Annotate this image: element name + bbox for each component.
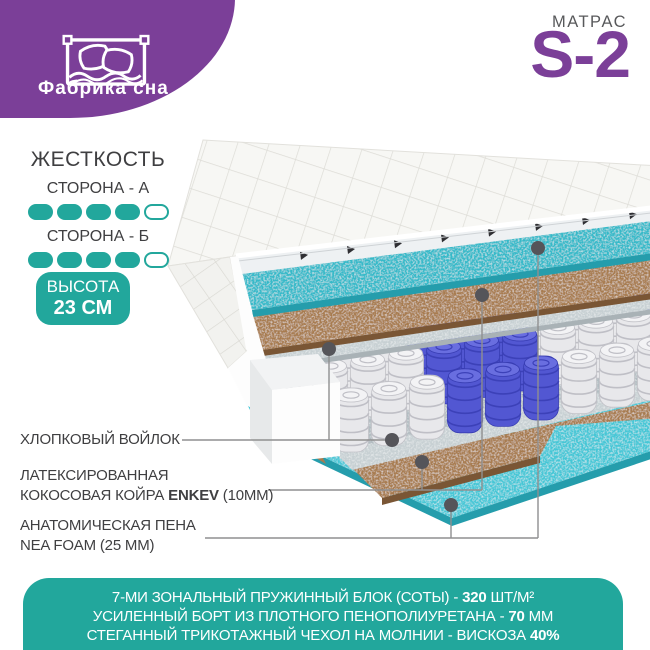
callout-dot-coir-top: [475, 288, 489, 302]
firmness-pill: [144, 252, 169, 268]
firmness-title: ЖЕСТКОСТЬ: [10, 148, 186, 172]
height-badge: ВЫСОТА 23 СМ: [36, 272, 130, 325]
callout-dot-felt-bottom: [385, 433, 399, 447]
firmness-pill: [86, 204, 111, 220]
layer-label-felt: ХЛОПКОВЫЙ ВОЙЛОК: [20, 430, 180, 450]
brand-name: Фабрика сна: [38, 78, 169, 100]
layer-label-coir: ЛАТЕКСИРОВАННАЯКОКОСОВАЯ КОЙРА ENKEV (10…: [20, 466, 273, 506]
firmness-panel: ЖЕСТКОСТЬ СТОРОНА - АСТОРОНА - Б: [10, 148, 186, 268]
pocket-spring-blue: [486, 362, 521, 426]
callout-dot-foam-top: [531, 241, 545, 255]
firmness-side-label: СТОРОНА - Б: [10, 228, 186, 246]
pocket-spring-white: [410, 375, 445, 439]
pocket-spring-blue: [524, 356, 559, 420]
pillow-icon: [78, 43, 134, 75]
callout-dot-coir-bottom: [415, 455, 429, 469]
specs-banner-line: УСИЛЕННЫЙ БОРТ ИЗ ПЛОТНОГО ПЕНОПОЛИУРЕТА…: [23, 607, 623, 626]
firmness-pill: [28, 252, 53, 268]
specs-banner: 7-МИ ЗОНАЛЬНЫЙ ПРУЖИННЫЙ БЛОК (СОТЫ) - 3…: [23, 578, 623, 650]
height-badge-value: 23 СМ: [54, 297, 113, 320]
pocket-spring-white: [638, 337, 650, 401]
firmness-pill: [115, 204, 140, 220]
pocket-spring-white: [562, 350, 597, 414]
pocket-spring-blue: [448, 369, 483, 433]
firmness-pill: [57, 204, 82, 220]
specs-banner-line: 7-МИ ЗОНАЛЬНЫЙ ПРУЖИННЫЙ БЛОК (СОТЫ) - 3…: [23, 588, 623, 607]
firmness-pill: [144, 204, 169, 220]
firmness-pill: [57, 252, 82, 268]
pocket-spring-white: [600, 343, 635, 407]
foam-border-block: [250, 354, 340, 464]
firmness-pill: [86, 252, 111, 268]
layer-label-foam: АНАТОМИЧЕСКАЯ ПЕНАNEA FOAM (25 ММ): [20, 516, 196, 556]
callout-dot-foam-bottom: [444, 498, 458, 512]
callout-dot-felt-top: [322, 342, 336, 356]
firmness-side-b: СТОРОНА - Б: [10, 228, 186, 268]
firmness-side-a: СТОРОНА - А: [10, 180, 186, 220]
product-infographic: Фабрика сна МАТРАС S-2 ЖЕСТКОСТЬ СТОРОНА…: [0, 0, 650, 650]
firmness-side-label: СТОРОНА - А: [10, 180, 186, 198]
product-model: S-2: [530, 20, 630, 89]
height-badge-title: ВЫСОТА: [47, 277, 120, 297]
firmness-pill: [115, 252, 140, 268]
firmness-pill-row: [10, 204, 186, 220]
specs-banner-line: СТЕГАННЫЙ ТРИКОТАЖНЫЙ ЧЕХОЛ НА МОЛНИИ - …: [23, 626, 623, 645]
firmness-pill-row: [10, 252, 186, 268]
firmness-pill: [28, 204, 53, 220]
